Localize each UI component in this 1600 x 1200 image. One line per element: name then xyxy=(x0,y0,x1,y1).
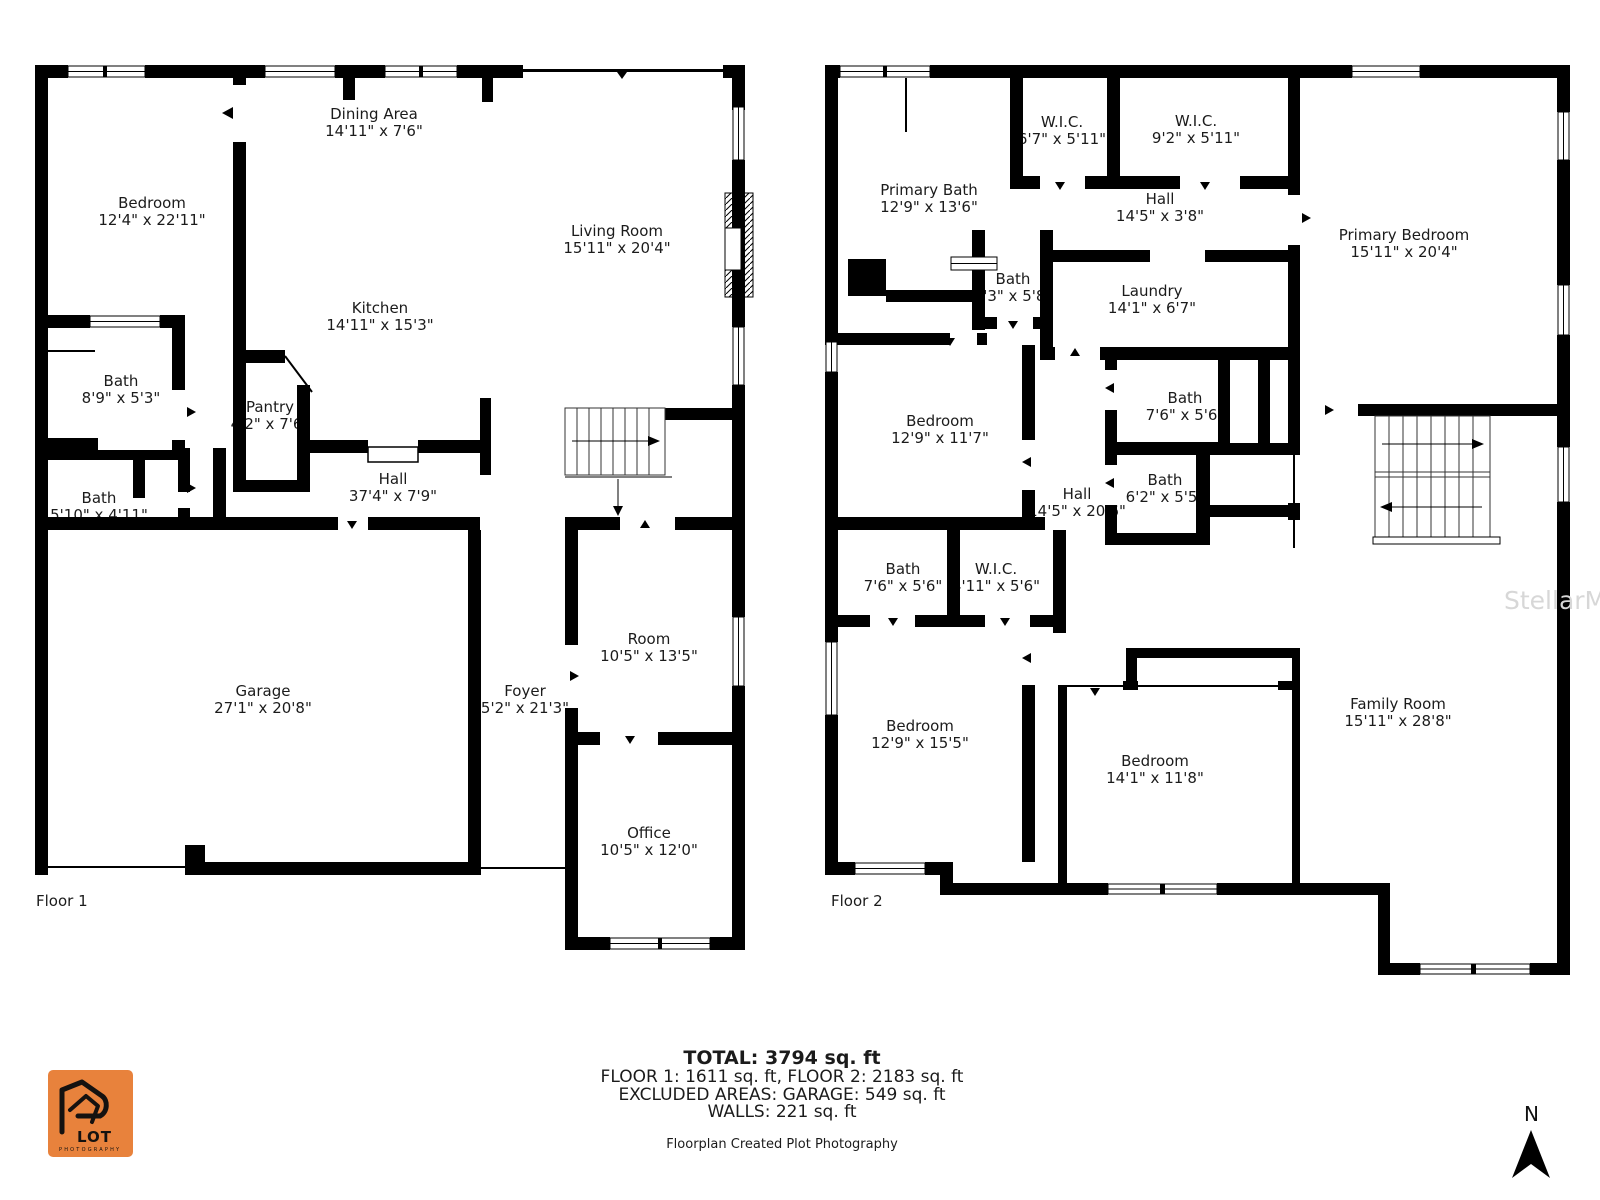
room-label-family-room: Family Room 15'11" x 28'8" xyxy=(1344,696,1451,730)
room-label-bedroom-f1: Bedroom 12'4" x 22'11" xyxy=(98,195,205,229)
room-label-kitchen: Kitchen 14'11" x 15'3" xyxy=(326,300,433,334)
room-label-bath-f2b: Bath 7'6" x 5'6" xyxy=(1146,390,1225,424)
total-area: TOTAL: 3794 sq. ft xyxy=(382,1048,1182,1069)
room-name: Primary Bedroom xyxy=(1339,227,1470,244)
room-label-hall-f1: Hall 37'4" x 7'9" xyxy=(349,471,437,505)
room-name: Bedroom xyxy=(1106,753,1204,770)
room-dims: 7'6" x 5'6" xyxy=(864,578,943,595)
room-name: Bath xyxy=(1126,472,1205,489)
floorplan-page: { "title": "Floorplan", "colors": { "wal… xyxy=(0,0,1600,1200)
room-name: Kitchen xyxy=(326,300,433,317)
room-dims: 8'9" x 5'3" xyxy=(82,390,161,407)
room-dims: 37'4" x 7'9" xyxy=(349,488,437,505)
walls-area: WALLS: 221 sq. ft xyxy=(382,1104,1182,1122)
room-name: Bedroom xyxy=(98,195,205,212)
room-label-room: Room 10'5" x 13'5" xyxy=(600,631,698,665)
room-label-office: Office 10'5" x 12'0" xyxy=(600,825,698,859)
room-name: Hall xyxy=(1028,486,1126,503)
area-summary: TOTAL: 3794 sq. ft FLOOR 1: 1611 sq. ft,… xyxy=(382,1048,1182,1152)
room-name: Room xyxy=(600,631,698,648)
logo-subtitle: PHOTOGRAPHY xyxy=(59,1147,121,1153)
room-dims: 14'5" x 3'8" xyxy=(1116,208,1204,225)
room-dims: 9'2" x 5'11" xyxy=(1152,130,1240,147)
credit-line: Floorplan Created Plot Photography xyxy=(382,1137,1182,1152)
room-name: W.I.C. xyxy=(1152,113,1240,130)
room-dims: 4'11" x 5'6" xyxy=(952,578,1040,595)
floor-areas: FLOOR 1: 1611 sq. ft, FLOOR 2: 2183 sq. … xyxy=(382,1069,1182,1087)
room-label-wic-1: W.I.C. 6'7" x 5'11" xyxy=(1018,114,1106,148)
room-label-bath-f2c: Bath 6'2" x 5'5" xyxy=(1126,472,1205,506)
room-dims: 7'6" x 5'6" xyxy=(1146,407,1225,424)
room-name: Dining Area xyxy=(325,106,423,123)
room-name: Primary Bath xyxy=(880,182,978,199)
room-label-bath-f1b: Bath 5'10" x 4'11" xyxy=(50,490,148,524)
room-name: W.I.C. xyxy=(952,561,1040,578)
floorplan-canvas xyxy=(0,0,1600,1200)
room-name: Garage xyxy=(214,683,312,700)
room-label-bath-f2a: Bath 5'3" x 5'8" xyxy=(974,271,1053,305)
room-name: Office xyxy=(600,825,698,842)
room-label-hall-f2a: Hall 14'5" x 3'8" xyxy=(1116,191,1204,225)
room-label-hall-f2b: Hall 14'5" x 20'6" xyxy=(1028,486,1126,520)
room-name: Family Room xyxy=(1344,696,1451,713)
plot-photography-logo: LOT PHOTOGRAPHY xyxy=(48,1070,133,1157)
room-dims: 15'11" x 20'4" xyxy=(563,240,670,257)
room-dims: 14'5" x 20'6" xyxy=(1028,503,1126,520)
room-dims: 12'9" x 11'7" xyxy=(891,430,989,447)
room-name: Bath xyxy=(50,490,148,507)
room-label-primary-bedroom: Primary Bedroom 15'11" x 20'4" xyxy=(1339,227,1470,261)
room-label-living-room: Living Room 15'11" x 20'4" xyxy=(563,223,670,257)
room-dims: 12'9" x 13'6" xyxy=(880,199,978,216)
room-name: Bath xyxy=(864,561,943,578)
room-dims: 12'9" x 15'5" xyxy=(871,735,969,752)
room-name: Bedroom xyxy=(891,413,989,430)
compass-north-label: N xyxy=(1524,1102,1539,1126)
room-dims: 4'2" x 7'6" xyxy=(231,416,310,433)
room-label-bath-f1a: Bath 8'9" x 5'3" xyxy=(82,373,161,407)
room-label-bedroom-f2c: Bedroom 14'1" x 11'8" xyxy=(1106,753,1204,787)
room-name: Living Room xyxy=(563,223,670,240)
floor2-label: Floor 2 xyxy=(831,892,883,910)
room-name: Foyer xyxy=(481,683,569,700)
door-leaf-outline xyxy=(368,447,418,462)
room-dims: 6'2" x 5'5" xyxy=(1126,489,1205,506)
room-dims: 10'5" x 12'0" xyxy=(600,842,698,859)
room-name: Bedroom xyxy=(871,718,969,735)
room-name: Hall xyxy=(1116,191,1204,208)
floor2-stairs xyxy=(1373,416,1500,544)
room-name: Bath xyxy=(82,373,161,390)
room-label-bath-f2d: Bath 7'6" x 5'6" xyxy=(864,561,943,595)
room-dims: 15'11" x 20'4" xyxy=(1339,244,1470,261)
room-dims: 15'11" x 28'8" xyxy=(1344,713,1451,730)
room-name: Laundry xyxy=(1108,283,1196,300)
room-dims: 10'5" x 13'5" xyxy=(600,648,698,665)
room-label-dining-area: Dining Area 14'11" x 7'6" xyxy=(325,106,423,140)
stellar-mls-watermark: StellarMLS xyxy=(1504,586,1600,615)
room-dims: 12'4" x 22'11" xyxy=(98,212,205,229)
room-name: Bath xyxy=(974,271,1053,288)
room-label-bedroom-f2a: Bedroom 12'9" x 11'7" xyxy=(891,413,989,447)
room-name: Bath xyxy=(1146,390,1225,407)
room-dims: 27'1" x 20'8" xyxy=(214,700,312,717)
primary-bath-vanity xyxy=(951,257,997,270)
room-dims: 5'2" x 21'3" xyxy=(481,700,569,717)
room-dims: 5'10" x 4'11" xyxy=(50,507,148,524)
room-dims: 14'11" x 15'3" xyxy=(326,317,433,334)
room-dims: 14'1" x 6'7" xyxy=(1108,300,1196,317)
fireplace xyxy=(725,193,753,297)
room-dims: 6'7" x 5'11" xyxy=(1018,131,1106,148)
room-label-wic-3: W.I.C. 4'11" x 5'6" xyxy=(952,561,1040,595)
floor1-stairs xyxy=(565,408,672,516)
room-label-laundry: Laundry 14'1" x 6'7" xyxy=(1108,283,1196,317)
room-name: W.I.C. xyxy=(1018,114,1106,131)
room-name: Pantry xyxy=(231,399,310,416)
room-label-garage: Garage 27'1" x 20'8" xyxy=(214,683,312,717)
room-dims: 14'11" x 7'6" xyxy=(325,123,423,140)
room-name: Hall xyxy=(349,471,437,488)
room-label-wic-2: W.I.C. 9'2" x 5'11" xyxy=(1152,113,1240,147)
room-dims: 5'3" x 5'8" xyxy=(974,288,1053,305)
room-label-bedroom-f2b: Bedroom 12'9" x 15'5" xyxy=(871,718,969,752)
room-dims: 14'1" x 11'8" xyxy=(1106,770,1204,787)
logo-wordmark: LOT xyxy=(77,1128,112,1146)
room-label-foyer: Foyer 5'2" x 21'3" xyxy=(481,683,569,717)
north-compass: N xyxy=(1496,1100,1566,1190)
room-label-pantry: Pantry 4'2" x 7'6" xyxy=(231,399,310,433)
room-label-primary-bath: Primary Bath 12'9" x 13'6" xyxy=(880,182,978,216)
floor1-label: Floor 1 xyxy=(36,892,88,910)
